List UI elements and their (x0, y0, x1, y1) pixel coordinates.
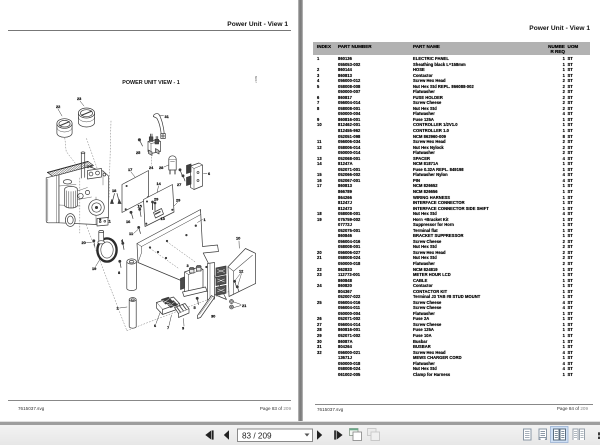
svg-text:17: 17 (128, 167, 132, 172)
svg-text:16: 16 (126, 219, 131, 224)
svg-text:31: 31 (165, 114, 170, 119)
svg-text:2: 2 (117, 306, 120, 311)
svg-text:22: 22 (56, 104, 61, 109)
svg-text:21: 21 (242, 303, 247, 308)
svg-text:19: 19 (92, 266, 97, 271)
svg-text:15: 15 (138, 204, 143, 209)
svg-text:23: 23 (77, 96, 82, 101)
svg-text:8: 8 (118, 270, 121, 275)
svg-text:28: 28 (159, 165, 164, 170)
svg-text:11: 11 (129, 231, 134, 236)
svg-text:9: 9 (182, 326, 185, 331)
svg-text:29: 29 (176, 198, 181, 203)
svg-text:27: 27 (177, 182, 181, 187)
svg-text:6: 6 (154, 323, 157, 328)
svg-text:6: 6 (208, 171, 211, 176)
svg-text:30: 30 (211, 314, 215, 319)
svg-text:10: 10 (236, 236, 240, 241)
svg-text:1: 1 (204, 217, 207, 222)
svg-text:18: 18 (112, 188, 117, 193)
svg-text:83 / 209: 83 / 209 (242, 431, 272, 440)
svg-text:25: 25 (136, 150, 141, 155)
svg-text:20: 20 (82, 240, 86, 245)
svg-text:7: 7 (167, 325, 169, 330)
svg-text:POWER UNIT VIEW - 1: POWER UNIT VIEW - 1 (122, 80, 180, 86)
svg-text:14: 14 (157, 181, 162, 186)
svg-text:5: 5 (194, 305, 197, 310)
svg-text:24: 24 (149, 165, 154, 170)
svg-text:86417: 86417 (254, 76, 257, 83)
